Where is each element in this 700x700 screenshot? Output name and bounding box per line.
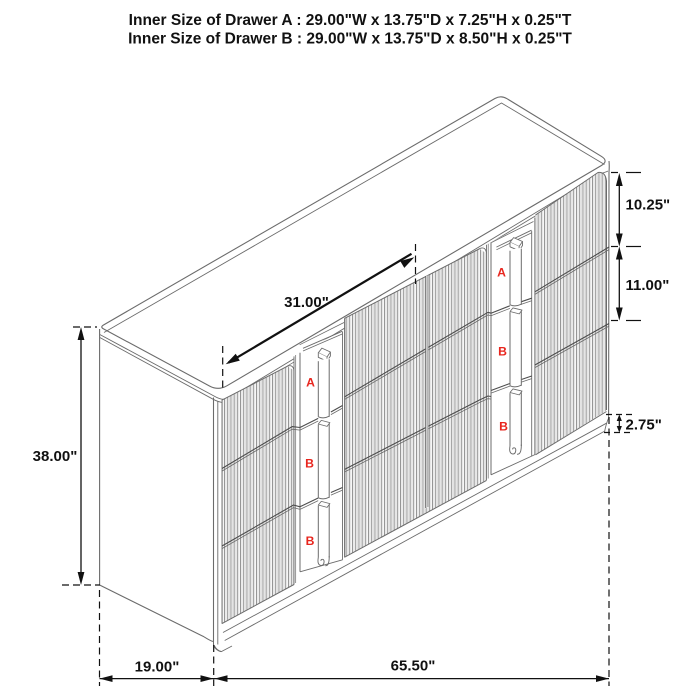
svg-text:11.00": 11.00" xyxy=(626,277,670,294)
svg-text:A: A xyxy=(497,266,506,280)
svg-text:Inner Size of Drawer B : 29.00: Inner Size of Drawer B : 29.00"W x 13.75… xyxy=(128,30,572,47)
svg-text:B: B xyxy=(306,534,315,548)
svg-text:B: B xyxy=(305,457,314,471)
svg-text:Inner Size of Drawer A : 29.00: Inner Size of Drawer A : 29.00"W x 13.75… xyxy=(129,12,572,29)
svg-text:38.00": 38.00" xyxy=(33,448,78,465)
svg-text:B: B xyxy=(499,420,508,434)
svg-text:B: B xyxy=(498,345,507,359)
svg-text:31.00": 31.00" xyxy=(284,294,329,311)
svg-text:10.25": 10.25" xyxy=(626,197,671,214)
svg-text:19.00": 19.00" xyxy=(135,659,180,676)
svg-text:2.75": 2.75" xyxy=(626,417,662,434)
svg-text:65.50": 65.50" xyxy=(391,658,436,675)
svg-text:A: A xyxy=(306,375,315,389)
